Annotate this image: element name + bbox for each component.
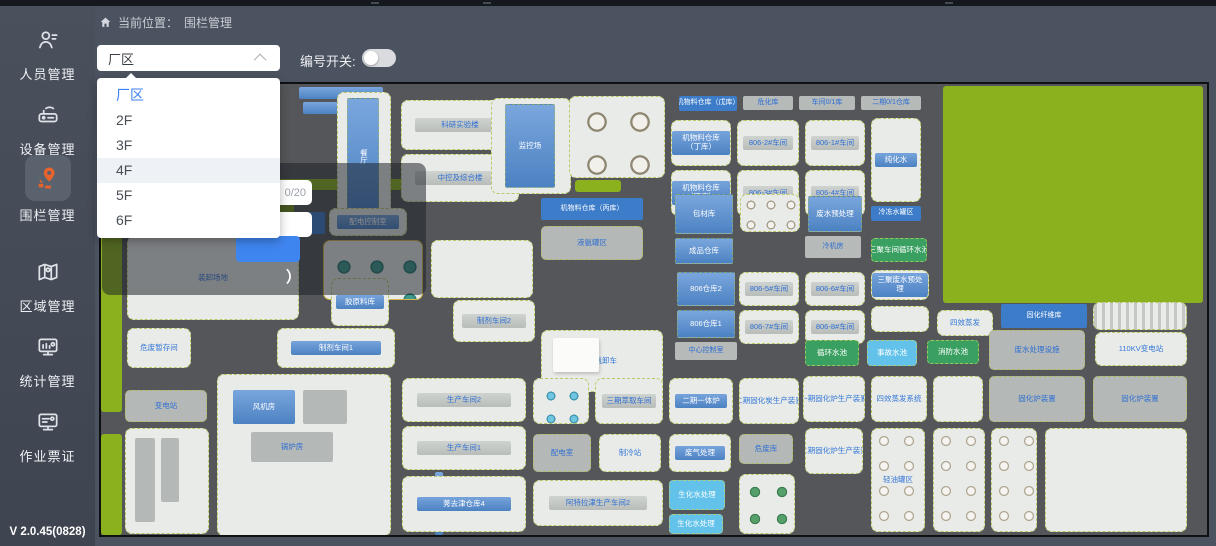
map-building[interactable]: 机物料仓库（丙库）: [541, 198, 643, 220]
main-content: 当前位置： 围栏管理 餐厅科研实验楼中控及综合楼监控场机物料仓库（戊库）危化库车…: [95, 6, 1216, 546]
map-building-label: 806-6#车间: [811, 282, 860, 297]
map-building-label: 三聚废水预处理: [872, 273, 928, 296]
map-area: [533, 378, 589, 424]
sidebar-item-devices[interactable]: 设备管理: [0, 95, 95, 158]
top-strip-mark: [371, 2, 379, 4]
map-building-label: 生产车间1: [417, 441, 510, 456]
map-building[interactable]: 806仓库2: [677, 272, 735, 306]
map-building-label: 循环水池: [817, 349, 847, 358]
map-building[interactable]: 制冷站: [599, 434, 661, 472]
map-building[interactable]: 二期0/1仓库: [861, 96, 921, 110]
map-building[interactable]: 液氨罐区: [541, 226, 643, 260]
sidebar-item-label: 统计管理: [0, 371, 95, 390]
work-ticket-icon: [26, 402, 70, 442]
floor-option-3f[interactable]: 3F: [97, 133, 280, 158]
map-area: [740, 194, 800, 232]
map-building-label: 莠去津仓库4: [417, 497, 510, 512]
toggle-knob: [364, 51, 378, 65]
map-area: [303, 390, 347, 424]
map-building-label: 806仓库1: [690, 320, 722, 329]
map-building[interactable]: 四效蒸发系统: [871, 376, 927, 422]
map-building[interactable]: 制剂车间2: [453, 300, 535, 342]
map-building-label: 机物料仓库（戊库）: [679, 99, 737, 107]
map-building[interactable]: 废水预处理: [808, 196, 862, 232]
map-building-label: 806-5#车间: [745, 282, 794, 297]
map-building[interactable]: 莠去津仓库4: [402, 476, 526, 532]
map-building[interactable]: 二期固化炉生产装置: [805, 428, 863, 474]
map-building[interactable]: 监控场: [505, 104, 555, 188]
map-building[interactable]: 冷机房: [805, 236, 861, 258]
map-building[interactable]: 消防水池: [927, 340, 979, 364]
map-building-label: 制冷站: [619, 449, 642, 458]
map-building-label: 成品仓库: [689, 247, 719, 256]
map-building-label: 配电室: [551, 449, 574, 458]
region-map-icon: [26, 252, 70, 292]
map-building[interactable]: 机物料仓库（戊库）: [679, 96, 737, 111]
map-building-label: 固化纤维库: [1027, 312, 1062, 320]
map-building-label: 806仓库2: [690, 285, 722, 294]
map-building[interactable]: 纯化水: [871, 118, 921, 202]
map-area: [933, 428, 985, 532]
number-switch-toggle[interactable]: [362, 49, 396, 67]
map-building-label: 四效蒸发系统: [877, 395, 922, 404]
map-building-label: 806-7#车间: [745, 320, 794, 335]
map-building[interactable]: 危废暂存间: [127, 328, 191, 368]
map-building-label: 二期固化炉生产装置: [805, 447, 863, 456]
map-building-label: 变电站: [155, 402, 178, 411]
map-building[interactable]: 生化水处理: [669, 514, 723, 534]
map-building-label: 事故水池: [877, 349, 907, 358]
map-building-label: 废水处理设施: [1015, 346, 1060, 355]
map-building[interactable]: 三聚废水预处理: [871, 270, 929, 300]
map-building-label: 危废暂存间: [140, 344, 178, 353]
map-building[interactable]: 四效蒸发: [937, 310, 993, 336]
char-count: 0/20: [285, 187, 306, 199]
sidebar-item-label: 作业票证: [0, 446, 95, 465]
map-building-label: 二期0/1仓库: [872, 99, 910, 107]
app-version: V 2.0.45(0828): [0, 526, 95, 538]
map-building[interactable]: 生化水处理: [669, 480, 725, 510]
map-building-label: 806-2#车间: [743, 136, 793, 151]
map-building-label: 110KV变电站: [1119, 345, 1163, 354]
map-building-label: 生化水处理: [678, 491, 716, 500]
sidebar-item-work-ticket[interactable]: 作业票证: [0, 402, 95, 465]
sidebar-item-label: 区域管理: [0, 296, 95, 315]
map-building-label: 生产车间2: [417, 393, 510, 408]
map-building[interactable]: 配电室: [533, 434, 591, 472]
map-building[interactable]: 固化炉装置: [989, 376, 1085, 422]
device-icon: [26, 95, 70, 135]
sidebar: 人员管理 设备管理 围栏管理 区域管理 统计管理: [0, 0, 95, 546]
map-building-label: 二期固化炭生产装置: [739, 397, 799, 406]
map-area: [431, 240, 533, 298]
map-building-label: 制剂车间2: [462, 314, 526, 329]
map-building[interactable]: 110KV变电站: [1095, 332, 1187, 366]
map-area: [739, 474, 795, 534]
map-building-label: 轻油罐区: [881, 475, 915, 486]
map-building-label: 806-8#车间: [811, 320, 860, 335]
map-building-label: 806-1#车间: [811, 136, 860, 151]
map-building[interactable]: 废气处理: [669, 434, 731, 472]
map-building-label: 冷冻水罐区: [879, 209, 914, 217]
map-building[interactable]: 机物料仓库（丁库）: [671, 120, 731, 166]
map-building-label: 废水预处理: [816, 210, 854, 219]
floor-option-6f[interactable]: 6F: [97, 208, 280, 233]
map-area: [1045, 428, 1187, 532]
map-building[interactable]: 成品仓库: [675, 238, 733, 264]
map-building[interactable]: 冷冻水罐区: [871, 206, 921, 221]
map-building-label: 生化水处理: [677, 520, 715, 529]
map-building-label: 纯化水: [875, 153, 917, 168]
map-area: [943, 86, 1203, 303]
map-building[interactable]: 806-2#车间: [737, 120, 799, 166]
sidebar-item-label: 人员管理: [0, 64, 95, 83]
map-building[interactable]: 阿特拉津生产车间2: [533, 480, 663, 526]
map-area: [991, 428, 1037, 532]
map-building-label: 固化炉装置: [1121, 395, 1159, 404]
map-building[interactable]: 危化库: [743, 96, 793, 110]
map-building-label: 车间0/1库: [812, 99, 843, 107]
app-window: 人员管理 设备管理 围栏管理 区域管理 统计管理: [0, 0, 1216, 546]
sidebar-item-personnel[interactable]: 人员管理: [0, 20, 95, 83]
breadcrumb-prefix: 当前位置：: [118, 14, 178, 31]
map-building[interactable]: 变电站: [125, 390, 207, 422]
map-building[interactable]: 固化纤维库: [1001, 304, 1087, 328]
map-building-label: 危废库: [755, 445, 778, 454]
floor-select[interactable]: 厂区: [97, 45, 280, 71]
map-building-label: 锅炉房: [281, 443, 304, 452]
map-building-label: 餐厅: [359, 149, 368, 164]
stats-monitor-icon: [26, 327, 70, 367]
map-building[interactable]: 二期一体炉: [669, 378, 733, 424]
map-building[interactable]: 二期固化炭生产装置: [739, 378, 799, 424]
breadcrumb: 当前位置： 围栏管理: [99, 14, 232, 31]
map-building[interactable]: 车间0/1库: [799, 96, 855, 110]
map-area: [135, 438, 155, 522]
floor-dropdown-menu: 厂区 2F 3F 4F 5F 6F: [97, 78, 280, 238]
map-building[interactable]: 危废库: [739, 434, 793, 464]
map-building[interactable]: 806-1#车间: [805, 120, 865, 166]
sidebar-item-statistics[interactable]: 统计管理: [0, 327, 95, 390]
map-building-label: 三期萃取车间: [602, 394, 656, 409]
breadcrumb-current: 围栏管理: [184, 14, 232, 31]
number-switch-label: 编号开关:: [300, 51, 356, 70]
map-building[interactable]: 三期萃取车间: [595, 378, 663, 424]
map-building[interactable]: 制剂车间1: [277, 328, 395, 368]
window-top-strip: [0, 0, 1216, 6]
top-strip-mark: [483, 2, 491, 4]
map-building-label: 三聚车间循环水池: [871, 246, 927, 255]
sidebar-item-label: 围栏管理: [0, 205, 95, 224]
fence-pin-icon: [25, 155, 71, 201]
map-area: [161, 438, 179, 502]
floor-option-5f[interactable]: 5F: [97, 183, 280, 208]
person-icon: [26, 20, 70, 60]
map-building-label: 阿特拉津生产车间2: [549, 496, 647, 511]
map-building-label: 监控场: [519, 142, 542, 151]
map-building-label: 一期固化炉生产装置: [803, 395, 865, 404]
home-icon[interactable]: [99, 16, 112, 29]
map-building[interactable]: 806-8#车间: [805, 310, 865, 344]
floor-select-value: 厂区: [108, 49, 257, 68]
map-building-label: 风机房: [253, 403, 276, 412]
sidebar-item-region[interactable]: 区域管理: [0, 252, 95, 315]
map-area: [933, 376, 983, 422]
map-building[interactable]: 事故水池: [867, 340, 917, 366]
map-building[interactable]: 轻油罐区: [871, 428, 925, 532]
map-area: [101, 434, 122, 535]
map-area: [575, 180, 621, 192]
map-building-label: 液氨罐区: [577, 239, 607, 248]
map-building[interactable]: 一期固化炉生产装置: [803, 376, 865, 422]
map-building-label: 包材库: [693, 210, 716, 219]
map-area: [1093, 302, 1187, 330]
popup-confirm-button[interactable]: [236, 236, 300, 262]
map-area: [871, 306, 929, 332]
map-area: [569, 96, 665, 178]
map-building[interactable]: 806-7#车间: [739, 310, 799, 344]
map-building[interactable]: 废水处理设施: [989, 330, 1085, 370]
map-building-label: 危化库: [758, 99, 779, 107]
map-building-label: 固化炉装置: [1018, 395, 1056, 404]
map-building-label: 中心控制室: [689, 347, 724, 355]
map-building[interactable]: 三聚车间循环水池: [871, 238, 927, 262]
map-building-label: 机物料仓库（丙库）: [561, 205, 624, 213]
map-building[interactable]: 固化炉装置: [1093, 376, 1187, 422]
map-building[interactable]: 生产车间2: [402, 378, 526, 422]
popup-partial-text: ）: [286, 266, 301, 287]
map-building-label: 二期一体炉: [675, 394, 726, 409]
map-building[interactable]: 中心控制室: [675, 342, 737, 360]
map-building[interactable]: 806仓库1: [677, 310, 735, 338]
map-building-label: 机物料仓库（丁库）: [672, 131, 730, 154]
map-building-label: 四效蒸发: [950, 319, 980, 328]
top-strip-mark: [945, 2, 953, 4]
map-building[interactable]: 锅炉房: [251, 432, 333, 462]
map-building[interactable]: 风机房: [233, 390, 295, 424]
map-building[interactable]: 包材库: [675, 194, 733, 234]
floor-option-4f[interactable]: 4F: [97, 158, 280, 183]
map-building-label: 冷机房: [823, 243, 844, 251]
map-building[interactable]: 806-6#车间: [805, 272, 865, 306]
map-building[interactable]: 生产车间1: [402, 426, 526, 470]
map-building-label: 制剂车间1: [291, 341, 380, 356]
map-building[interactable]: 循环水池: [805, 340, 859, 366]
map-building[interactable]: 806-5#车间: [739, 272, 799, 306]
map-building-label: 消防水池: [938, 348, 968, 357]
map-area: [553, 338, 599, 372]
floor-option-2f[interactable]: 2F: [97, 108, 280, 133]
map-building-label: 废气处理: [675, 446, 725, 461]
map-building-label: 胶原料库: [336, 295, 383, 310]
floor-option-factory[interactable]: 厂区: [97, 83, 280, 108]
sidebar-item-fence[interactable]: 围栏管理: [0, 155, 95, 224]
